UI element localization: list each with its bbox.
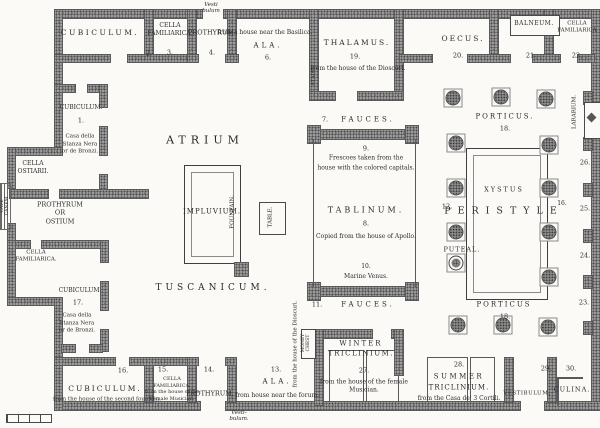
winter-triclinium-number: 27.	[359, 367, 369, 376]
column	[543, 271, 556, 284]
wall-segment	[584, 230, 592, 242]
lararium-label: LARARIUM.	[571, 95, 578, 129]
wall-segment	[101, 330, 108, 351]
wall-segment	[62, 345, 75, 352]
cubiculum-1-label: CUBICULUM.	[60, 104, 103, 112]
ala-13-number: 13.	[271, 366, 281, 375]
scale-bar	[6, 414, 52, 423]
peristyle-number: 12.	[442, 203, 452, 212]
column	[450, 182, 463, 195]
bay-25-number: 25.	[580, 205, 590, 214]
cubiculum-1-number: 1.	[78, 117, 84, 126]
wall-segment	[406, 283, 418, 300]
xystus-label: XYSTUS	[484, 186, 524, 195]
ala-6-label: ALA.	[254, 41, 283, 50]
peristyle-label: PERISTYLE	[444, 206, 564, 219]
cubiculum-17-label: CUBICULUM.	[59, 287, 102, 295]
tablinum-label: TABLINUM.	[328, 206, 405, 217]
porticus-bottom-number: 18.	[500, 313, 510, 322]
wall-segment	[42, 241, 108, 248]
wall-segment	[226, 358, 236, 365]
cella-familiarica-22-label: CELLA FAMILIARICA	[557, 21, 596, 36]
cella-familiarica-15-number: 15.	[158, 366, 168, 375]
wall-segment	[358, 92, 403, 100]
summer-triclinium-label-1: SUMMER	[434, 372, 484, 381]
peristyle-right-number: 16.	[557, 200, 567, 208]
wall-segment	[10, 190, 48, 198]
thalamus-label: THALAMUS.	[324, 38, 391, 48]
marine-venus-number: 10.	[361, 263, 371, 271]
oecus-label: OECUS.	[442, 34, 485, 44]
cubiculum-16-label: CUBICULUM.	[68, 384, 142, 394]
culina-label: CULINA.	[554, 386, 591, 395]
wall-segment	[468, 55, 510, 62]
wall-segment	[101, 282, 108, 310]
cella-familiarica-22-number: 22.	[572, 52, 582, 61]
wall-segment	[315, 330, 372, 338]
cubiculum-1-caption: Casa della Stanza Nera or de Bronzi.	[62, 133, 98, 156]
wall-segment	[400, 55, 432, 62]
culina-number: 30.	[566, 365, 576, 374]
vestibulum-back-number: 29.	[541, 365, 551, 374]
bay-24-number: 24.	[580, 252, 590, 261]
column	[447, 92, 460, 105]
prothyrum-ostium-label: PROTHYRUM OR OSTIUM	[37, 200, 83, 225]
cella-familiarica-left-label: CELLA FAMILIARICA.	[15, 250, 56, 265]
fountain-label: FOUNTAIN.	[229, 195, 236, 229]
fauces-7-label: FAUCES.	[341, 115, 394, 124]
ala-6-caption: from a house near the Basilica.	[218, 29, 313, 37]
puteal-label: PUTEAL.	[444, 246, 481, 255]
money-chest-caption: from the house of the Dioscuri.	[292, 301, 299, 388]
winter-triclinium-caption: from the house of the female Musician.	[320, 379, 408, 396]
balneum-label: BALNEUM.	[514, 20, 553, 28]
wall-segment	[60, 190, 148, 198]
wall-segment	[101, 241, 108, 262]
thalamus-number: 19.	[350, 53, 360, 62]
wall-segment	[8, 298, 62, 305]
thin-wall-line	[557, 377, 583, 379]
fauces-11-label: FAUCES.	[341, 300, 394, 309]
wall-segment	[55, 85, 75, 92]
wall-segment	[545, 402, 600, 410]
fauces-7-number: 7.	[322, 116, 328, 125]
porticus-top-number: 18.	[500, 125, 510, 134]
wall-segment	[188, 55, 198, 62]
tablinum-caption: Copied from the house of Apollo.	[316, 233, 416, 241]
cubiculum-16-number: 16.	[118, 367, 128, 376]
vestibulum-top-label: Vesti bulum	[202, 2, 220, 14]
frescoes-number: 9.	[363, 145, 369, 154]
wall-segment	[188, 358, 198, 365]
porticus-bottom-label: PORTICUS	[476, 300, 531, 309]
wall-segment	[584, 184, 592, 196]
column	[542, 321, 555, 334]
ala-13-label: ALA.	[263, 377, 292, 386]
wall-segment	[584, 322, 592, 334]
cubiculum-17-caption: Casa della Stanza Nera or de Bronzi.	[59, 312, 95, 335]
cella-familiarica-3-label: CELLA FAMILIARICA.	[148, 22, 193, 38]
cubiculum-17-number: 17.	[73, 299, 83, 308]
wall-segment	[310, 287, 418, 296]
wall-segment	[308, 126, 320, 143]
oecus-number: 20.	[453, 52, 463, 61]
wall-segment	[8, 148, 15, 188]
wall-segment	[584, 276, 592, 288]
prothyrum-14-label: PROTHYRUM.	[186, 390, 234, 399]
column	[543, 139, 556, 152]
wall-segment	[8, 148, 62, 155]
frescoes-caption: Frescoes taken from the house with the c…	[317, 153, 414, 172]
wall-segment	[310, 92, 335, 100]
wall-segment	[226, 55, 238, 62]
xystus-inner-border	[473, 155, 541, 293]
wall-segment	[592, 10, 600, 410]
thalamus-caption: from the house of the Dioscuri.	[311, 65, 406, 73]
table-label: TABLE.	[267, 207, 274, 228]
vestibulum-back-label: VESTIBULUM.	[503, 390, 550, 397]
column	[450, 137, 463, 150]
summer-triclinium-label-2: TRICLINIUM.	[429, 383, 490, 392]
wall-segment	[55, 358, 115, 365]
vestibulum-bottom-label: Vesti- bulum.	[229, 410, 248, 422]
summer-triclinium-number: 28.	[454, 361, 464, 370]
cella-ostiarii-label: CELLA OSTIARII.	[18, 160, 49, 176]
money-chest-label: MONEY CHEST	[302, 334, 312, 353]
cubiculum-2-number: 2.	[146, 50, 152, 59]
winter-triclinium-label-1: WINTER	[339, 339, 382, 348]
ala-13-caption: from house near the forum.	[235, 392, 319, 400]
winter-triclinium-label-2: TRICLINIUM.	[328, 349, 394, 358]
wall-segment	[533, 55, 560, 62]
column	[543, 182, 556, 195]
wall-segment	[308, 283, 320, 300]
prothyrum-4-number: 4.	[209, 49, 215, 58]
tuscanicum-label: TUSCANICUM.	[155, 282, 270, 294]
wall-segment	[100, 175, 107, 190]
wall-segment	[130, 358, 188, 365]
wall-segment	[55, 10, 202, 18]
thin-wall-line	[313, 139, 314, 287]
wall-segment	[128, 55, 188, 62]
wall-segment	[310, 130, 418, 139]
wall-segment	[100, 127, 107, 155]
wall-segment	[395, 330, 403, 375]
tablinum-number: 8.	[363, 220, 369, 229]
room-21-number: 21.	[526, 52, 536, 61]
puteal-wellhead	[450, 257, 463, 270]
wall-segment	[90, 345, 102, 352]
ala-6-number: 6.	[265, 54, 271, 63]
porticus-top-label: PORTICUS.	[475, 112, 534, 121]
bay-26-number: 26.	[580, 159, 590, 168]
column	[450, 226, 463, 239]
column	[495, 91, 508, 104]
atrium-label: ATRIUM	[166, 134, 244, 149]
cave-canem-label: CAVE CANEM	[1, 197, 11, 216]
prothyrum-14-number: 14.	[204, 366, 214, 375]
wall-segment	[226, 402, 520, 410]
bay-23-number: 23.	[579, 299, 589, 308]
wall-segment	[310, 10, 318, 100]
wall-segment	[8, 241, 15, 305]
marine-venus-label: Marine Venus.	[344, 273, 388, 281]
column	[540, 93, 553, 106]
cubiculum-2-label: CUBICULUM.	[61, 28, 140, 38]
summer-triclinium-caption: from the Casa de' 3 Cortili.	[418, 395, 501, 403]
fauces-11-number: 11.	[312, 301, 322, 310]
wall-segment	[55, 55, 110, 62]
wall-segment	[406, 126, 418, 143]
floor-plan: ATRIUM TUSCANICUM. IMPLUVIUM. FOUNTAIN. …	[0, 0, 600, 428]
thin-wall-line	[415, 139, 416, 287]
column	[543, 226, 556, 239]
column	[452, 319, 465, 332]
wall-segment	[584, 138, 592, 150]
fountain-basin	[235, 263, 248, 276]
cella-familiarica-3-number: 3.	[167, 49, 173, 58]
